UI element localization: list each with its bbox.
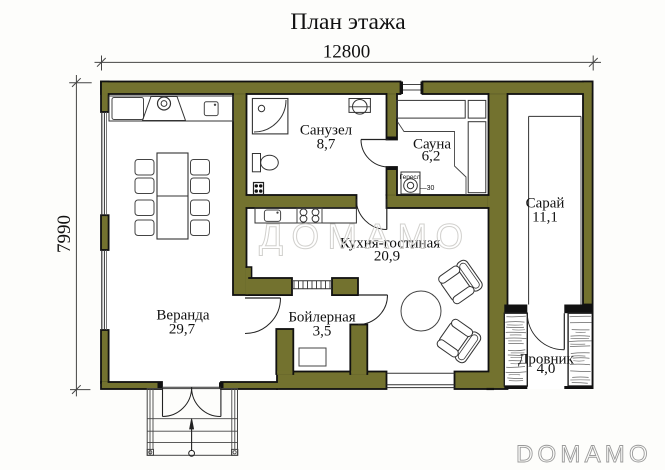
svg-text:4,0: 4,0 [537, 361, 556, 377]
svg-text:7990: 7990 [54, 215, 75, 253]
svg-text:DOMAMO: DOMAMO [516, 441, 652, 468]
svg-text:План этажа: План этажа [290, 9, 406, 35]
svg-text:6,2: 6,2 [422, 149, 441, 165]
svg-text:29,7: 29,7 [169, 322, 196, 338]
svg-text:Гересл: Гересл [400, 174, 421, 181]
svg-text:12800: 12800 [323, 42, 371, 63]
svg-text:—30: —30 [420, 185, 435, 192]
svg-text:8,7: 8,7 [317, 136, 336, 152]
svg-text:ДОМАМО: ДОМАМО [259, 217, 472, 257]
svg-text:11,1: 11,1 [532, 210, 558, 226]
svg-text:3,5: 3,5 [313, 324, 332, 340]
